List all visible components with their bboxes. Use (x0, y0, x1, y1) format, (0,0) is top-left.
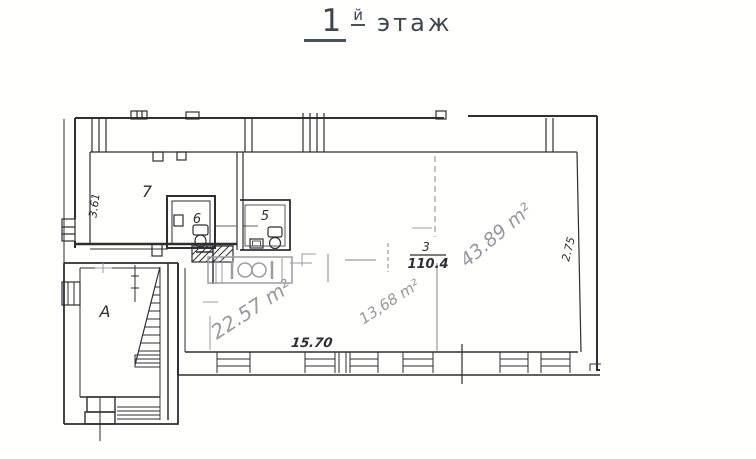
area-43-label: 43.89 m² (456, 199, 537, 272)
dim-right-wall: 2.75 (559, 236, 578, 263)
room6-label: 6 (193, 212, 201, 227)
entry-steps (117, 397, 160, 420)
window (350, 352, 378, 373)
wing-window-mullions (68, 282, 74, 305)
toilet-bowl-icon (270, 238, 281, 249)
stair-landing-lines (135, 359, 160, 363)
pencil-area-annotations: 22.57 m² 13,68 m² 43.89 m² (206, 199, 536, 344)
window (217, 352, 250, 373)
floor-plan-page: 1йэтаж (0, 0, 756, 459)
room7-label: 7 (142, 182, 153, 201)
stair-treads (139, 287, 160, 351)
dim-left-wall: 3.61 (86, 192, 102, 218)
sink-room5-icon (250, 239, 263, 248)
room7-wall-notch (152, 244, 162, 256)
wall-notch-1 (153, 152, 163, 161)
staircase (131, 265, 160, 367)
right-wall-outer (597, 116, 600, 370)
pencil-block-circle (238, 263, 252, 277)
pier-lines (339, 352, 346, 373)
partition-wall-5 (237, 152, 243, 250)
dim-bottom: 15.70 (290, 336, 333, 351)
sink-room5-basin (253, 241, 261, 246)
window (541, 352, 570, 373)
entry-porch-upper (87, 397, 115, 412)
window (305, 352, 335, 373)
pencil-block-circle (252, 263, 266, 277)
toilet-tank-icon (268, 227, 282, 237)
room5-label: 5 (261, 209, 269, 224)
area-22-label: 22.57 m² (206, 274, 295, 344)
wing (62, 263, 178, 441)
wall-notch-2 (177, 152, 186, 160)
roomA-label: А (99, 302, 111, 321)
stair-stringer (135, 267, 160, 365)
stair-landing (135, 355, 160, 367)
window (500, 352, 528, 373)
sink-room6-icon (174, 215, 183, 226)
door-leaf-line (196, 246, 213, 284)
room3-area: 110.4 (407, 257, 448, 272)
floor-plan-drawing: 7 6 5 А 3 110.4 3.61 2.75 15.70 22.57 m²… (0, 0, 756, 459)
window (403, 352, 433, 373)
right-wall-inner (577, 152, 581, 352)
wing-bottom-outer (64, 375, 178, 424)
toilet-room5 (250, 227, 282, 249)
hatch-area (192, 246, 233, 284)
stair-walk-line (131, 265, 139, 302)
room3-number: 3 (422, 240, 430, 254)
area-13-label: 13,68 m² (356, 276, 423, 328)
wc-rooms (167, 152, 290, 250)
bottom-windows (217, 352, 570, 373)
room5-walls (240, 200, 290, 250)
